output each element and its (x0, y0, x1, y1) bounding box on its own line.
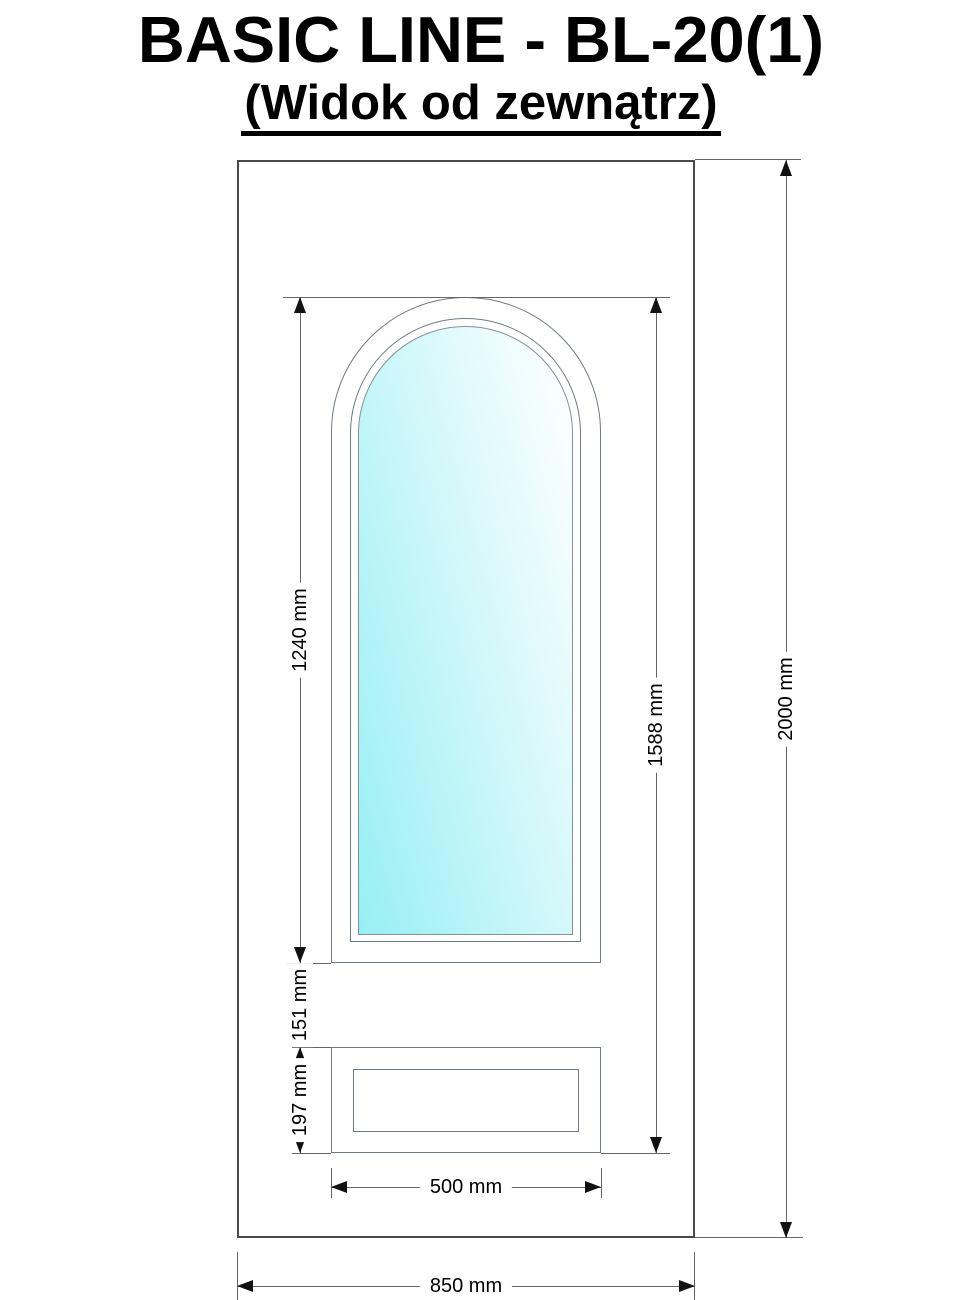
dim-label-panel-height: 197 mm (287, 1058, 313, 1142)
page-title: BASIC LINE - BL-20(1) (0, 4, 962, 77)
dim-arrow-up (780, 160, 792, 176)
dim-arrow-right (679, 1280, 695, 1292)
door-technical-drawing: BASIC LINE - BL-20(1) (Widok od zewnątrz… (0, 0, 962, 1300)
dim-arrow-up (650, 297, 662, 313)
dim-arrow-right (585, 1181, 601, 1193)
extension-line-window-top (283, 297, 670, 298)
dim-arrow-down (650, 1137, 662, 1153)
window-glass (358, 326, 573, 935)
page-subtitle: (Widok od zewnątrz) (241, 79, 720, 136)
extension-line-panel-bottom-right (601, 1153, 670, 1154)
extension-line-panel-bottom-left (292, 1153, 331, 1154)
dim-arrow-up (294, 297, 306, 313)
dim-arrow-left (331, 1181, 347, 1193)
extension-line-850-left (237, 1252, 238, 1300)
dim-label-inner-width: 500 mm (420, 1175, 512, 1199)
dim-arrow-left (237, 1280, 253, 1292)
extension-line-850-right (694, 1252, 695, 1300)
dim-arrow-down (294, 947, 306, 963)
dim-arrow-down (780, 1222, 792, 1238)
bottom-panel-inner (353, 1069, 579, 1132)
dim-label-window-height: 1240 mm (287, 582, 313, 677)
dim-label-door-width: 850 mm (420, 1274, 512, 1298)
extension-line-500-right (601, 1168, 602, 1198)
dim-label-mid-gap-height: 151 mm (287, 963, 313, 1047)
subtitle-row: (Widok od zewnątrz) (0, 79, 962, 136)
dim-label-window-panel-span: 1588 mm (643, 677, 669, 772)
dim-label-door-height: 2000 mm (773, 651, 799, 746)
